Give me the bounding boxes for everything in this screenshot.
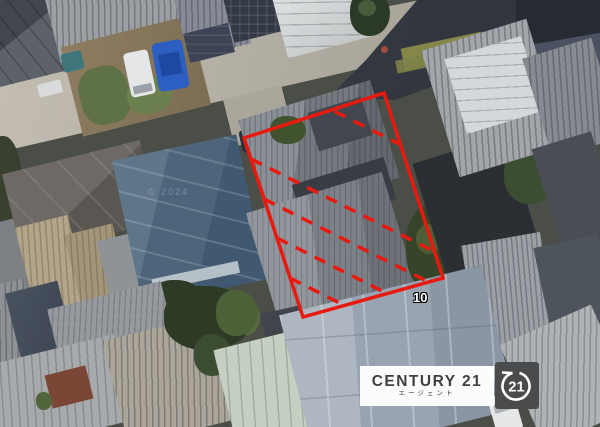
road-marking: [381, 46, 388, 53]
brand-panel: CENTURY 21 エージェント: [360, 366, 494, 406]
imagery-copyright: © 2024: [148, 187, 189, 197]
aerial-photo: © 2024 10 CENTURY 21 エージェント 21: [0, 0, 600, 427]
shrub: [270, 116, 306, 144]
brand-watermark: CENTURY 21 エージェント 21: [360, 362, 539, 409]
van-windshield: [133, 83, 153, 95]
parcel-number-label: 10: [413, 290, 427, 305]
car-roof: [158, 51, 183, 76]
tree: [358, 0, 376, 16]
brand-name: CENTURY 21: [372, 374, 483, 390]
seal-number: 21: [508, 380, 524, 396]
brand-seal: 21: [495, 362, 539, 409]
seal-ring-tail-icon: [502, 373, 513, 374]
bush: [36, 392, 52, 410]
brand-subtitle: エージェント: [399, 391, 456, 398]
tree: [216, 290, 258, 336]
